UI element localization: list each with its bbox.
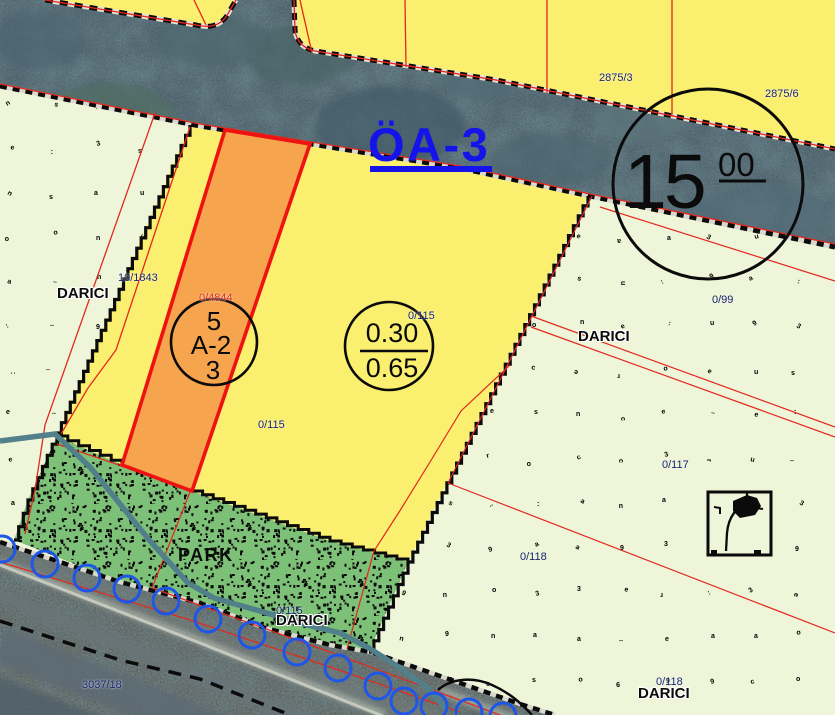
svg-text:u: u (443, 591, 447, 598)
svg-text:0/4844: 0/4844 (199, 292, 233, 304)
svg-text:0.30: 0.30 (366, 318, 419, 348)
svg-text:e: e (6, 409, 10, 416)
svg-text::: : (537, 501, 539, 508)
svg-text:o: o (5, 235, 9, 242)
svg-text:u: u (140, 190, 144, 197)
svg-text:c: c (617, 459, 624, 463)
svg-text:DARICI: DARICI (57, 285, 109, 302)
svg-text::: : (9, 372, 16, 374)
svg-text:r: r (705, 459, 712, 462)
svg-text::: : (51, 148, 53, 155)
svg-text:u: u (754, 369, 758, 376)
svg-text:..: .. (50, 321, 54, 328)
svg-text:e: e (665, 636, 669, 643)
svg-text:..: .. (46, 367, 50, 374)
svg-text:2875/6: 2875/6 (765, 88, 799, 100)
svg-text:3: 3 (577, 586, 581, 593)
svg-text:s: s (532, 677, 536, 684)
svg-text:0.65: 0.65 (366, 353, 419, 383)
svg-text:a: a (667, 235, 671, 242)
svg-text:o: o (796, 676, 800, 683)
svg-text:e: e (792, 593, 799, 597)
svg-text:0/118: 0/118 (520, 551, 547, 563)
svg-text:DARICI: DARICI (578, 328, 630, 345)
svg-text:15: 15 (624, 139, 704, 225)
svg-text:u: u (619, 281, 626, 285)
svg-text:a: a (533, 632, 537, 639)
svg-text:..: .. (619, 638, 623, 645)
svg-text:r: r (617, 372, 620, 379)
svg-text:e: e (490, 408, 494, 415)
svg-text:DARICI: DARICI (276, 612, 328, 629)
svg-text:ÖA-3: ÖA-3 (368, 118, 490, 171)
svg-text:0/117: 0/117 (662, 459, 689, 471)
svg-text:o: o (527, 460, 531, 467)
svg-text:a: a (577, 636, 581, 643)
svg-text:r: r (660, 591, 663, 598)
svg-text:00: 00 (718, 146, 755, 183)
svg-text:s: s (534, 409, 538, 416)
svg-text:u: u (710, 320, 714, 327)
svg-text:n: n (491, 633, 495, 640)
svg-text:0/115: 0/115 (258, 419, 285, 431)
svg-text:a: a (94, 190, 98, 197)
svg-text:0/115: 0/115 (408, 310, 435, 322)
svg-text:u: u (619, 502, 623, 509)
svg-text:s: s (49, 193, 53, 200)
svg-text:n: n (580, 319, 584, 326)
svg-text:..: .. (790, 458, 794, 465)
svg-text:a: a (662, 497, 666, 504)
svg-text:n: n (96, 235, 100, 242)
svg-text:PARK: PARK (178, 545, 234, 565)
svg-text:e: e (574, 368, 578, 375)
svg-text:9: 9 (616, 680, 620, 687)
svg-text:9: 9 (445, 631, 449, 638)
svg-text:a: a (711, 633, 715, 640)
svg-text:2875/3: 2875/3 (599, 72, 633, 84)
svg-text:..: .. (52, 409, 56, 416)
svg-text:a: a (11, 500, 15, 507)
svg-text:9: 9 (795, 546, 799, 553)
svg-text:3: 3 (206, 355, 220, 385)
svg-text:a: a (754, 633, 758, 640)
svg-text:c: c (619, 417, 626, 421)
svg-text:3037/18: 3037/18 (82, 679, 122, 691)
svg-text:0/99: 0/99 (712, 294, 733, 306)
svg-text:o: o (492, 587, 496, 594)
svg-text:3: 3 (664, 541, 668, 548)
svg-text:n: n (576, 411, 580, 418)
svg-text:a: a (617, 237, 621, 244)
svg-text:10/1843: 10/1843 (118, 272, 158, 284)
svg-text:DARICI: DARICI (638, 685, 690, 702)
svg-text:9: 9 (96, 324, 100, 331)
svg-text:s: s (791, 369, 795, 376)
